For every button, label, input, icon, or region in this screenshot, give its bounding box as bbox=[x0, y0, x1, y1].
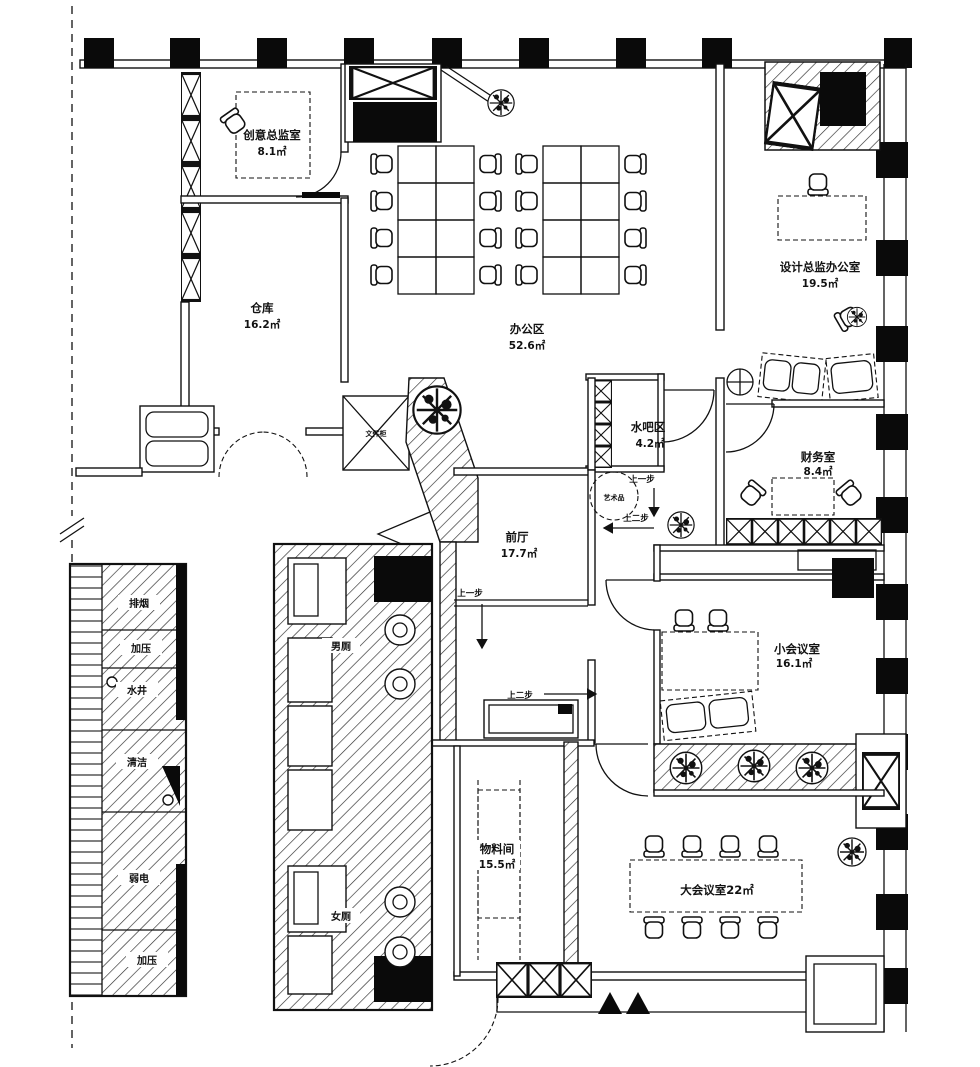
chair-icon bbox=[480, 191, 501, 211]
shaft-black bbox=[820, 72, 866, 126]
room-area-finance: 8.4㎡ bbox=[803, 465, 833, 478]
entry-mat-icon bbox=[529, 963, 559, 997]
desk-item bbox=[558, 704, 572, 714]
column bbox=[84, 38, 114, 68]
chair-icon bbox=[480, 154, 501, 174]
chair-icon bbox=[644, 836, 664, 857]
chair-icon bbox=[644, 917, 664, 938]
tree-icon bbox=[670, 752, 702, 784]
window-cabinet-icon bbox=[182, 212, 201, 255]
column bbox=[876, 326, 908, 362]
room-label-design: 设计总监办公室 bbox=[780, 260, 861, 274]
desk-cluster-right bbox=[516, 146, 646, 294]
wall-segment bbox=[497, 998, 806, 1012]
wall-segment bbox=[654, 790, 884, 796]
room-area-small-meeting: 16.1㎡ bbox=[776, 657, 813, 670]
door-arc bbox=[219, 432, 264, 477]
room-label-office: 办公区 bbox=[510, 322, 545, 336]
desk bbox=[778, 196, 866, 240]
chair-icon bbox=[516, 154, 537, 174]
floor-plan-drawing: 文件柜 艺术品 上一步 上二步 上一步 上二步 bbox=[0, 0, 980, 1067]
column bbox=[257, 38, 287, 68]
chair-icon bbox=[808, 174, 828, 195]
wall-segment bbox=[454, 746, 460, 976]
room-label-foyer: 前厅 bbox=[506, 530, 529, 544]
chair-icon bbox=[758, 917, 778, 938]
door-diagonal bbox=[441, 66, 496, 104]
meeting-table bbox=[662, 632, 758, 690]
cushion bbox=[763, 359, 792, 392]
chair-icon bbox=[758, 836, 778, 857]
cabinet-xbox-icon bbox=[753, 519, 778, 544]
shaft-xbox-icon bbox=[765, 83, 820, 149]
chair-icon bbox=[720, 836, 740, 857]
column bbox=[876, 142, 908, 178]
shaft-label-press-upper: 加压 bbox=[130, 642, 151, 655]
fixture-basin bbox=[385, 887, 415, 917]
bench-cabinet bbox=[140, 406, 214, 472]
chair-icon bbox=[682, 917, 702, 938]
tree-icon bbox=[738, 750, 770, 782]
room-label-creative: 创意总监室 bbox=[242, 128, 301, 142]
room-area-office: 52.6㎡ bbox=[509, 339, 546, 352]
hatched-wall bbox=[440, 542, 456, 744]
shaft-label-press-lower: 加压 bbox=[136, 954, 157, 967]
cabinet-xbox-icon bbox=[727, 519, 752, 544]
cabinet-xbox-icon bbox=[805, 519, 830, 544]
room-area-foyer: 17.7㎡ bbox=[501, 547, 538, 560]
chair-icon bbox=[371, 191, 392, 211]
wall-segment bbox=[341, 198, 348, 382]
north-triangle-icon bbox=[626, 992, 650, 1014]
tree-icon bbox=[838, 838, 866, 866]
room-area-design: 19.5㎡ bbox=[802, 277, 839, 290]
wall-segment bbox=[588, 660, 595, 744]
chair-icon bbox=[625, 191, 646, 211]
room-label-womens-toilet: 女厕 bbox=[331, 910, 351, 923]
shaft-label-low-voltage: 弱电 bbox=[129, 872, 149, 885]
grid-break-icon bbox=[60, 518, 84, 542]
hatched-wall bbox=[564, 742, 578, 976]
column bbox=[170, 38, 200, 68]
cushion bbox=[708, 697, 749, 729]
door-arc bbox=[262, 432, 307, 477]
chair-icon bbox=[480, 228, 501, 248]
column bbox=[519, 38, 549, 68]
sofa bbox=[826, 354, 878, 403]
chair-icon bbox=[835, 479, 864, 508]
shaft-xbox-icon bbox=[863, 754, 899, 808]
door-arc bbox=[726, 404, 774, 452]
column bbox=[884, 38, 912, 68]
chair-icon bbox=[480, 265, 501, 285]
room-area-creative: 8.1㎡ bbox=[257, 145, 287, 158]
room-label-warehouse: 仓库 bbox=[250, 301, 274, 315]
artwork-label: 艺术品 bbox=[604, 493, 625, 502]
door-arc bbox=[606, 580, 654, 630]
wall-segment bbox=[588, 378, 595, 470]
shaft-label-water: 水井 bbox=[126, 684, 147, 697]
fixture-stall bbox=[288, 706, 332, 766]
fixture-basin bbox=[385, 937, 415, 967]
desk-cluster-left bbox=[371, 146, 501, 294]
tree-icon bbox=[847, 307, 866, 326]
tree-icon bbox=[796, 752, 828, 784]
chair-icon bbox=[738, 479, 767, 508]
step-label: 上二步 bbox=[623, 513, 649, 524]
room-label-waterbar: 水吧区 bbox=[631, 420, 666, 434]
chair-icon bbox=[625, 154, 646, 174]
cabinet-xbox-icon bbox=[857, 519, 882, 544]
column bbox=[876, 414, 908, 450]
cushion bbox=[792, 362, 821, 395]
stair-annotations: 上一步 上二步 上一步 上二步 bbox=[457, 474, 655, 701]
cabinet-xbox-icon bbox=[779, 519, 804, 544]
room-design-director bbox=[726, 62, 884, 452]
cabinet-label: 文件柜 bbox=[366, 429, 387, 438]
shaft-xbox-icon bbox=[351, 67, 435, 99]
column bbox=[616, 38, 646, 68]
chair-icon bbox=[708, 610, 728, 631]
elevator-bottom-right bbox=[806, 956, 884, 1032]
floor-plan-page: 文件柜 艺术品 上一步 上二步 上一步 上二步 bbox=[0, 0, 980, 1067]
shaft-black bbox=[374, 556, 432, 602]
sofa bbox=[758, 353, 826, 403]
cushion bbox=[830, 360, 873, 394]
door-arc bbox=[664, 390, 714, 442]
room-area-waterbar: 4.2㎡ bbox=[635, 437, 665, 450]
room-area-warehouse: 16.2㎡ bbox=[244, 318, 281, 331]
door-leaf bbox=[302, 192, 340, 198]
window-cabinet-icon bbox=[182, 120, 201, 163]
chair-icon bbox=[674, 610, 694, 631]
pipe-icon bbox=[163, 795, 173, 805]
fixture-stall bbox=[288, 770, 332, 830]
wall-segment bbox=[586, 374, 664, 380]
north-triangle-icon bbox=[598, 992, 622, 1014]
service-shaft-block: 排烟 加压 水井 清洁 弱电 加压 bbox=[70, 564, 186, 996]
tree-icon bbox=[413, 386, 460, 433]
wall-segment bbox=[654, 545, 660, 581]
shaft-label-cleaning: 清洁 bbox=[127, 756, 147, 769]
toilet-block: 男厕 女厕 bbox=[274, 544, 432, 1010]
window-cabinet-icon bbox=[182, 74, 201, 117]
door-arc bbox=[296, 152, 341, 197]
chair-icon bbox=[682, 836, 702, 857]
pipe-icon bbox=[107, 677, 117, 687]
wall-segment bbox=[654, 630, 660, 744]
wall-segment bbox=[306, 428, 348, 435]
step-label: 上一步 bbox=[457, 588, 483, 599]
chair-icon bbox=[516, 228, 537, 248]
shaft-black bbox=[176, 564, 186, 720]
elevator-top-center bbox=[345, 64, 496, 142]
fixture-basin bbox=[385, 615, 415, 645]
entry-door-arc bbox=[430, 998, 498, 1066]
window-cabinet-icon bbox=[182, 258, 201, 301]
room-label-finance: 财务室 bbox=[800, 450, 836, 464]
shaft-black bbox=[176, 864, 186, 996]
cushion bbox=[666, 701, 707, 733]
step-label: 上二步 bbox=[507, 690, 533, 701]
column bbox=[876, 584, 908, 620]
door-arc bbox=[596, 744, 648, 796]
shaft-black bbox=[353, 102, 437, 142]
chair-icon bbox=[371, 154, 392, 174]
room-label-small-meeting: 小会议室 bbox=[773, 642, 820, 656]
desk bbox=[772, 478, 834, 515]
wall-segment bbox=[716, 64, 724, 330]
entry-mat-icon bbox=[497, 963, 527, 997]
room-label-mens-toilet: 男厕 bbox=[331, 641, 351, 653]
column bbox=[876, 894, 908, 930]
room-warehouse bbox=[76, 198, 348, 477]
sofa bbox=[660, 691, 756, 740]
column bbox=[876, 240, 908, 276]
chair-icon bbox=[720, 917, 740, 938]
chair-icon bbox=[625, 265, 646, 285]
column bbox=[876, 658, 908, 694]
fixture-stall bbox=[288, 936, 332, 994]
room-area-material: 15.5㎡ bbox=[479, 858, 516, 871]
wall-segment bbox=[588, 470, 595, 605]
wall-segment bbox=[772, 400, 884, 407]
shaft-label-smoke: 排烟 bbox=[129, 597, 149, 610]
wall-segment bbox=[76, 468, 142, 476]
chair-icon bbox=[516, 191, 537, 211]
tree-icon bbox=[668, 512, 694, 538]
room-label-large-meeting: 大会议室22㎡ bbox=[680, 883, 754, 897]
fixture-basin bbox=[385, 669, 415, 699]
chair-icon bbox=[516, 265, 537, 285]
chair-icon bbox=[371, 265, 392, 285]
tree-icon bbox=[488, 90, 514, 116]
wall-segment bbox=[454, 468, 594, 475]
stair-strip bbox=[70, 564, 104, 996]
room-creative-director bbox=[181, 64, 348, 432]
entry-mat-icon bbox=[561, 963, 591, 997]
chair-icon bbox=[371, 228, 392, 248]
chair-icon bbox=[625, 228, 646, 248]
room-label-material: 物料间 bbox=[480, 842, 515, 856]
cabinet-xbox-icon bbox=[831, 519, 856, 544]
wall-segment bbox=[716, 378, 724, 546]
column bbox=[832, 558, 874, 598]
fixture-stall bbox=[288, 558, 346, 624]
planter-strip bbox=[654, 734, 906, 828]
step-label: 上一步 bbox=[629, 474, 655, 485]
